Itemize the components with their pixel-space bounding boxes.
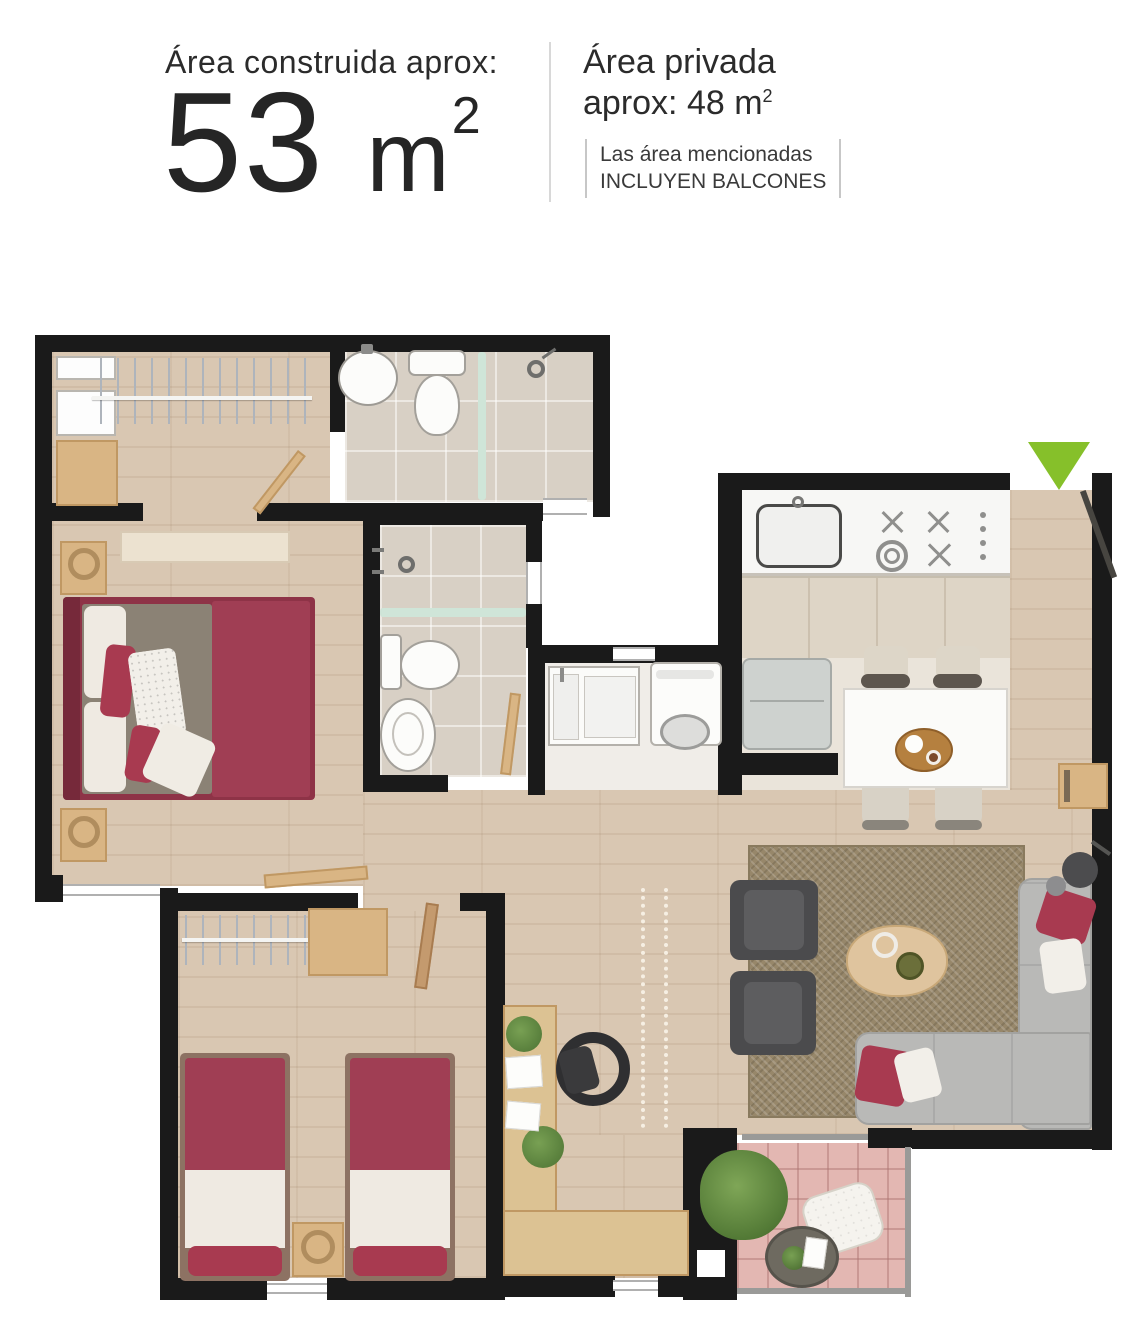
cup [926, 750, 941, 765]
shower-glass-divider [380, 608, 526, 617]
dining-chair-back [861, 674, 910, 688]
wall [160, 888, 178, 1300]
twin-bed-duvet [185, 1058, 285, 1176]
closet-cabinet [56, 440, 118, 506]
armchair-seat [744, 890, 804, 950]
wall [35, 335, 610, 352]
sink-faucet [361, 344, 373, 354]
desk-plant [506, 1016, 542, 1052]
bathroom-sink [338, 350, 398, 406]
armchair-seat [744, 982, 802, 1044]
stove-burner-inner [884, 548, 900, 564]
twin-bed-sheet [185, 1170, 285, 1248]
twin-bed-sheet [350, 1170, 450, 1248]
toilet-tank [380, 634, 402, 690]
balcony-table-book [802, 1237, 828, 1270]
wall [35, 875, 63, 902]
stove-burner [878, 508, 906, 536]
washer-door [660, 714, 710, 750]
wall [363, 508, 542, 525]
desk-return [503, 1210, 689, 1276]
toilet-tank [408, 350, 466, 376]
zone-dashed-line [641, 888, 645, 1128]
closet-rail [92, 396, 312, 400]
floor-lamp [1062, 852, 1098, 888]
bidet-basin [392, 712, 424, 756]
utility-sink-basin [584, 676, 636, 738]
wall [1092, 473, 1112, 1150]
bathroom-1-window [543, 498, 587, 515]
bedroom-dresser [120, 531, 290, 563]
utility-sink-drainer [553, 674, 579, 740]
entry-floor [1010, 490, 1092, 790]
nightstand-lamp [68, 548, 100, 580]
closet-hangers [100, 358, 308, 424]
balcony-railing [737, 1288, 911, 1294]
wall [160, 1278, 267, 1300]
desk-plant [522, 1126, 564, 1168]
wall [528, 645, 545, 795]
twin-bed-pillow [188, 1246, 282, 1276]
wall [718, 473, 742, 795]
stove-burner [924, 540, 954, 570]
bathroom-2-window [526, 562, 542, 604]
table-plant [896, 952, 924, 980]
nightstand-lamp [68, 816, 100, 848]
wall [718, 753, 838, 775]
balcony-railing [905, 1147, 911, 1297]
twin-bed-pillow [353, 1246, 447, 1276]
wall [327, 1278, 503, 1300]
bed-duvet [212, 601, 310, 797]
refrigerator [742, 658, 832, 750]
dining-chair-back [933, 674, 982, 688]
shower-head-icon [527, 360, 545, 378]
shower-valve [372, 570, 384, 574]
laundry-window [613, 647, 655, 661]
closet-cabinet [308, 908, 388, 976]
wall [363, 775, 448, 792]
bed-headboard [63, 597, 80, 800]
balcony-plant [700, 1150, 788, 1240]
papers [505, 1101, 541, 1132]
nightstand-lamp [301, 1230, 335, 1264]
shower-valve [372, 548, 384, 552]
balcony-sliding-door [742, 1134, 868, 1140]
wall [35, 335, 52, 902]
twin-bed-duvet [350, 1058, 450, 1176]
papers [505, 1055, 543, 1089]
kitchen-faucet [792, 496, 804, 508]
master-bedroom-window [63, 884, 160, 896]
stove-burner [924, 508, 952, 536]
washer-controls [656, 670, 714, 679]
desk-area-window [613, 1280, 660, 1291]
stove-knobs [980, 512, 986, 518]
floor-lamp-base [1046, 876, 1066, 896]
dining-chair-back [935, 820, 982, 830]
bedroom-2-window [267, 1283, 327, 1294]
toilet-bowl [400, 640, 460, 690]
entry-console-decor [1064, 770, 1070, 802]
dining-chair-back [862, 820, 909, 830]
table-bowl [872, 932, 898, 958]
wall [503, 1275, 615, 1297]
refrigerator-line [750, 700, 824, 702]
floor-plan [0, 0, 1148, 1335]
closet-rail [182, 938, 312, 942]
wall-niche [697, 1250, 725, 1277]
wall [718, 473, 1010, 490]
shower-head-icon [398, 556, 415, 573]
utility-faucet [560, 668, 564, 682]
shower-glass-divider [478, 352, 486, 500]
wall [593, 335, 610, 517]
kitchen-sink [756, 504, 842, 568]
entrance-arrow-icon [1028, 442, 1090, 490]
wall [912, 1130, 1103, 1149]
zone-dashed-line [664, 888, 668, 1128]
sofa-pillow-white [1039, 937, 1088, 994]
serving-tray [895, 728, 953, 772]
cup [905, 735, 923, 753]
wall [868, 1128, 912, 1148]
toilet-bowl [414, 374, 460, 436]
